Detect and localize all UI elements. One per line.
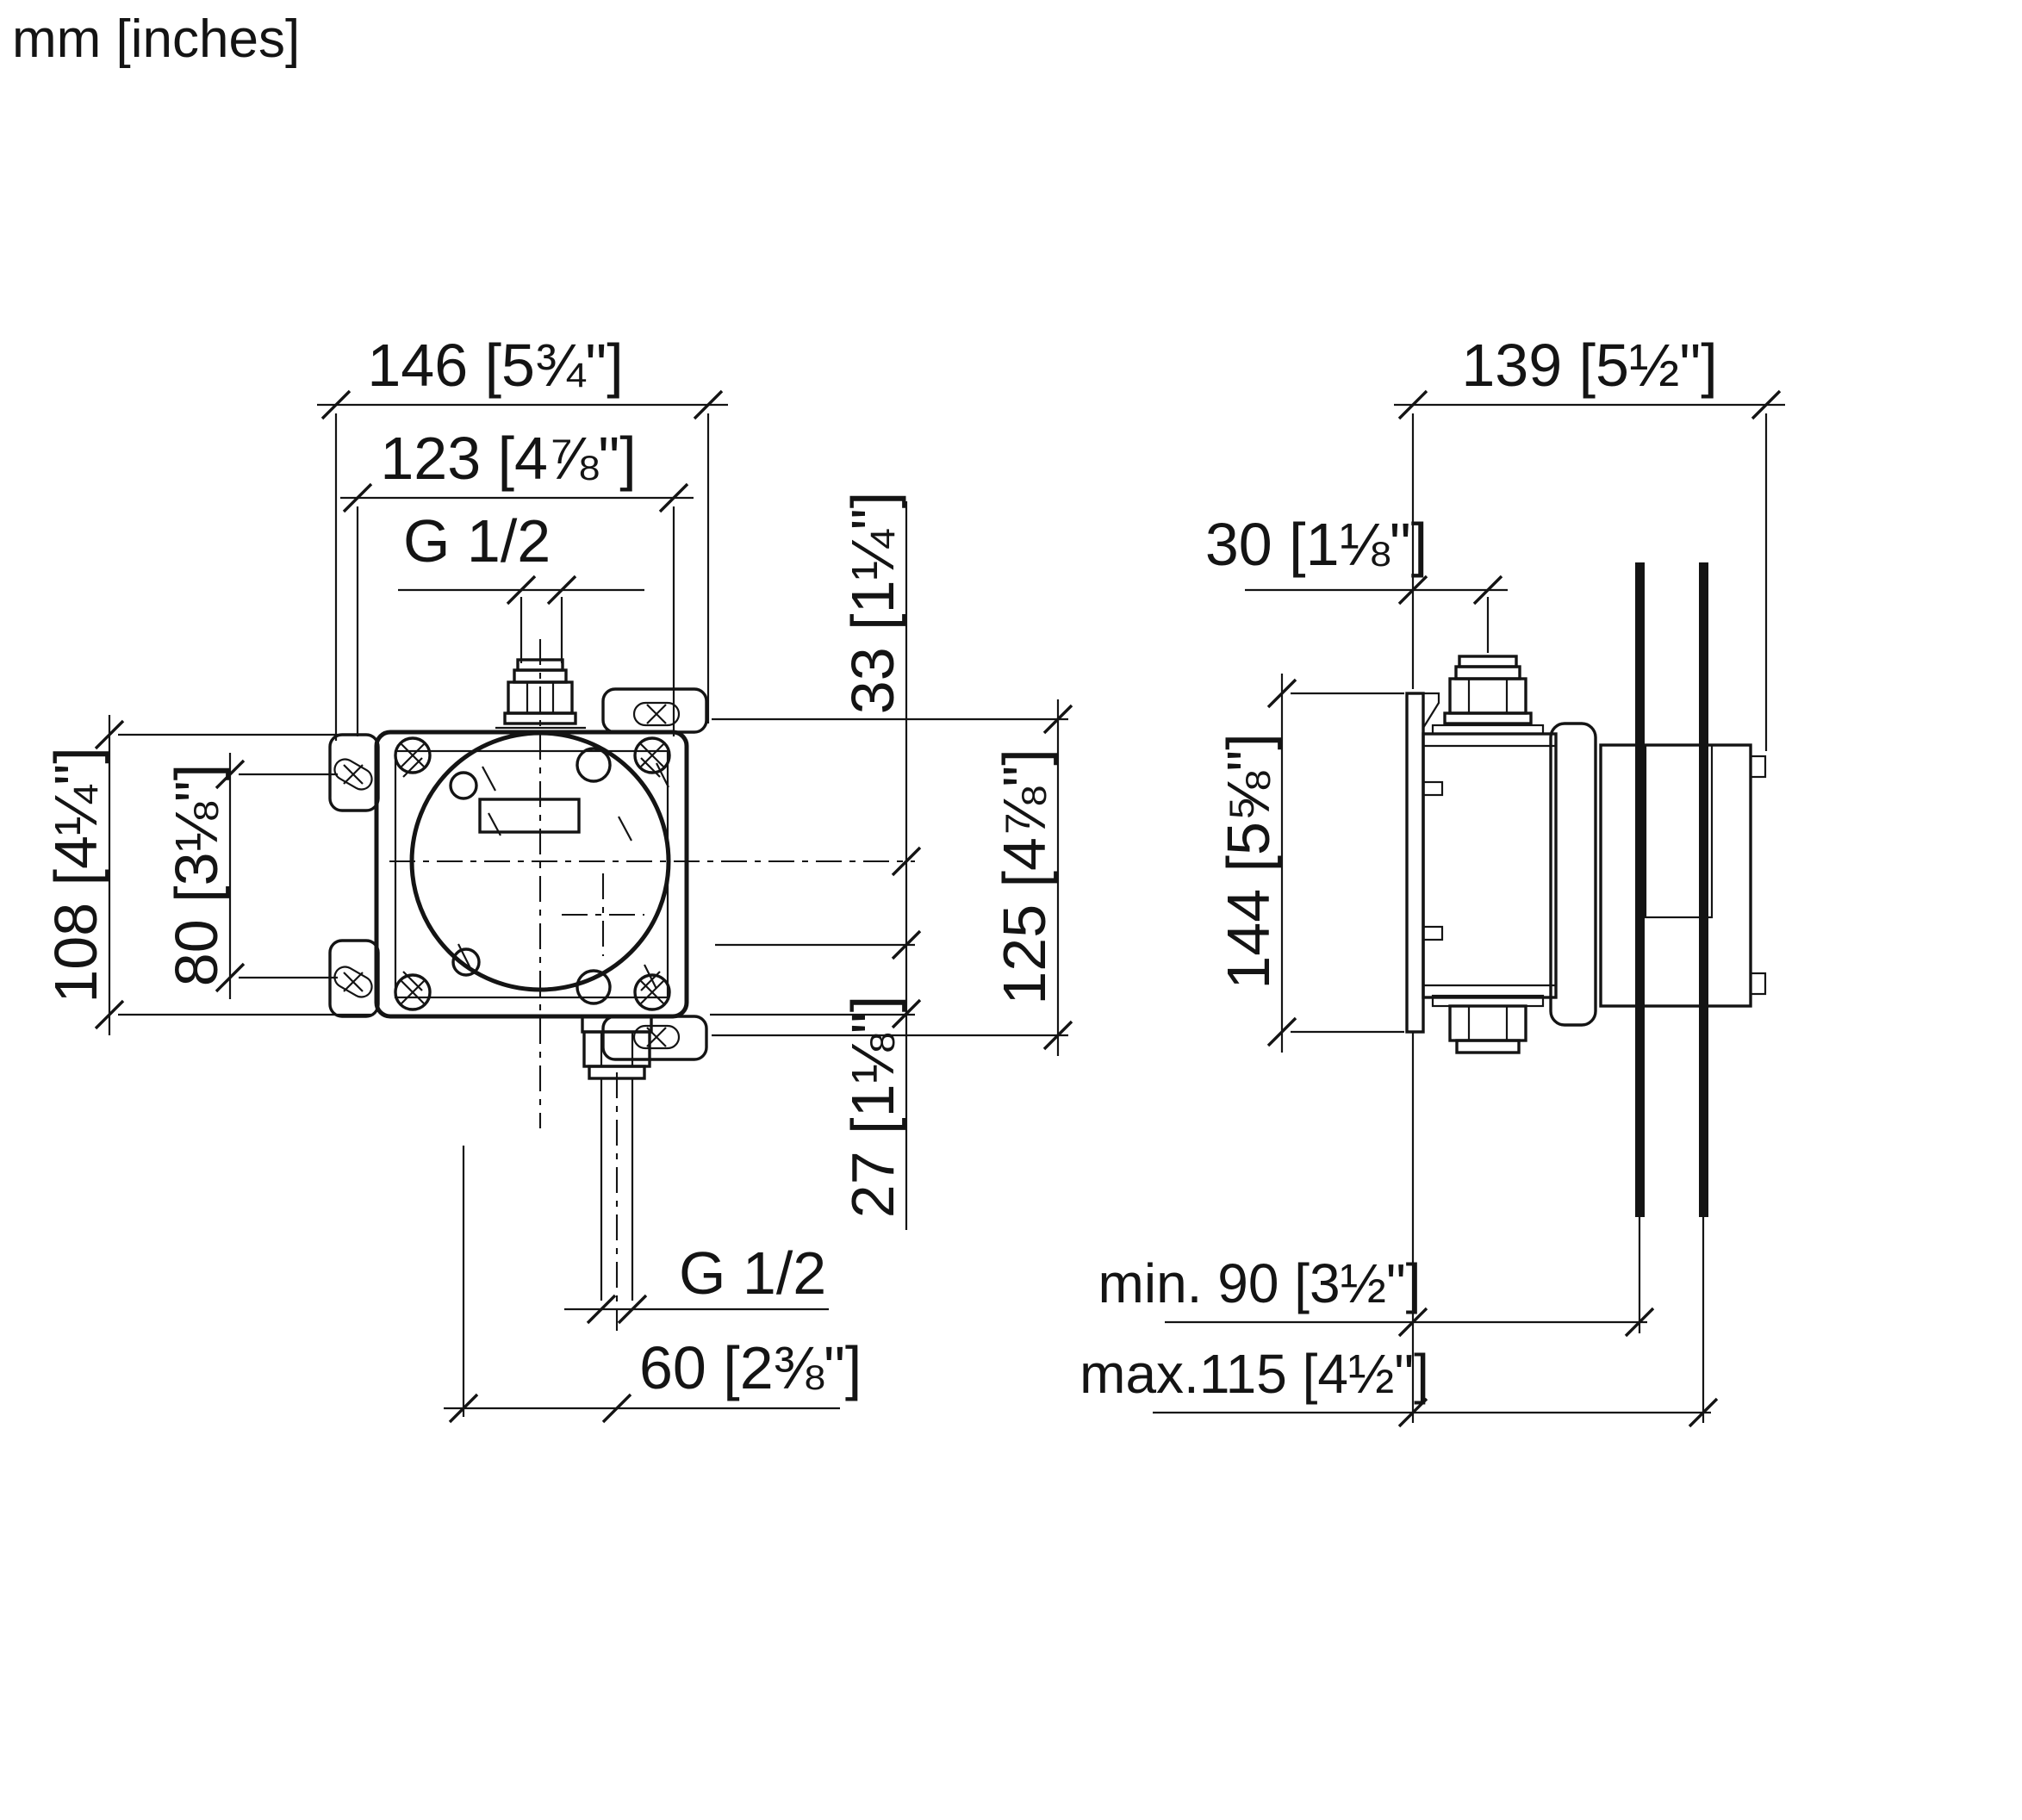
dim-thread-top: G 1/2 — [398, 507, 644, 663]
thread-top-label: G 1/2 — [403, 507, 551, 575]
front-view: 146 [5¾"] 123 [4⅞"] G 1/2 108 — [42, 332, 1072, 1422]
dim-label-outlet-offset: 60 [2⅜"] — [639, 1334, 862, 1401]
dim-label-install-depth-min: min. 90 [3½"] — [1098, 1252, 1422, 1314]
technical-drawing-page: mm [inches] 146 [5¾"] 123 [4⅞"] G 1/2 — [0, 0, 2022, 1820]
flange-hole — [577, 748, 610, 781]
dim-label-width-overall: 146 [5¾"] — [367, 332, 623, 399]
stub-hex-nut — [1450, 1006, 1526, 1040]
body-side-outline — [1423, 734, 1556, 997]
bottom-connection-stub — [582, 1016, 651, 1331]
mounting-tabs — [330, 689, 706, 1059]
dim-label-bottom-offset: 27 [1⅛"] — [839, 996, 906, 1218]
plate-corner — [1423, 693, 1439, 728]
extension-tab — [1751, 973, 1765, 994]
units-note: mm [inches] — [12, 9, 300, 69]
extension-body — [1601, 745, 1751, 1006]
dim-label-width-body: 123 [4⅞"] — [380, 425, 636, 492]
stub-hex-nut — [1450, 679, 1526, 713]
dimension-drawing: mm [inches] 146 [5¾"] 123 [4⅞"] G 1/2 — [0, 0, 2022, 1820]
dim-plate-height: 144 [5⅝"] — [1215, 674, 1404, 1053]
dim-label-install-depth-max: max.115 [4½"] — [1079, 1343, 1429, 1405]
stub-cap — [1459, 656, 1516, 667]
dim-label-body-height: 125 [4⅞"] — [991, 748, 1058, 1004]
mounting-plate — [1407, 693, 1423, 1032]
dim-connection-projection: 30 [1⅛"] — [1205, 511, 1508, 653]
body-outline — [376, 732, 687, 1016]
stub-base — [1445, 713, 1531, 724]
valve-body-side — [1407, 562, 1765, 1217]
stub-flange — [582, 1016, 651, 1032]
dim-label-height-overall: 108 [4¼"] — [42, 747, 109, 1003]
stub-hex-nut — [584, 1032, 650, 1066]
corner-screws — [395, 738, 669, 1009]
stub-cap — [1456, 667, 1520, 679]
side-view: 139 [5½"] 30 [1⅛"] 144 [5⅝"] — [1079, 332, 1785, 1426]
top-connection-stub-side — [1433, 656, 1543, 734]
extension-tab — [1751, 756, 1765, 777]
bottom-connection-stub-side — [1433, 996, 1543, 1053]
wall-surface-max-line — [1699, 562, 1708, 1217]
dim-mount-hole-spacing: 80 [3⅛"] — [163, 753, 338, 999]
stub-cap — [1457, 1040, 1519, 1053]
dim-label-mount-hole-spacing: 80 [3⅛"] — [163, 764, 230, 986]
flange-hole — [451, 773, 476, 798]
dim-label-top-offset: 33 [1¼"] — [839, 492, 906, 714]
tab-profile — [1423, 782, 1442, 795]
hatch-mark — [482, 767, 495, 791]
dim-label-plate-height: 144 [5⅝"] — [1215, 733, 1282, 989]
valve-body-front — [330, 639, 915, 1331]
dim-thread-bottom: G 1/2 — [564, 1239, 829, 1323]
label-plate — [480, 799, 579, 832]
thread-bottom-label: G 1/2 — [679, 1239, 826, 1307]
flange-hole — [577, 971, 610, 1003]
extension-housing — [1601, 745, 1765, 1006]
dim-install-depth-max: max.115 [4½"] — [1079, 1343, 1717, 1426]
collar-ring — [1551, 724, 1596, 1025]
wall-surface-min-line — [1635, 562, 1645, 1217]
dim-depth-overall: 139 [5½"] — [1394, 332, 1785, 751]
tab-profile — [1423, 927, 1442, 940]
dim-label-connection-projection: 30 [1⅛"] — [1205, 511, 1428, 578]
flange-hole — [453, 949, 479, 975]
dim-label-depth-overall: 139 [5½"] — [1461, 332, 1717, 399]
hatch-mark — [619, 817, 631, 841]
